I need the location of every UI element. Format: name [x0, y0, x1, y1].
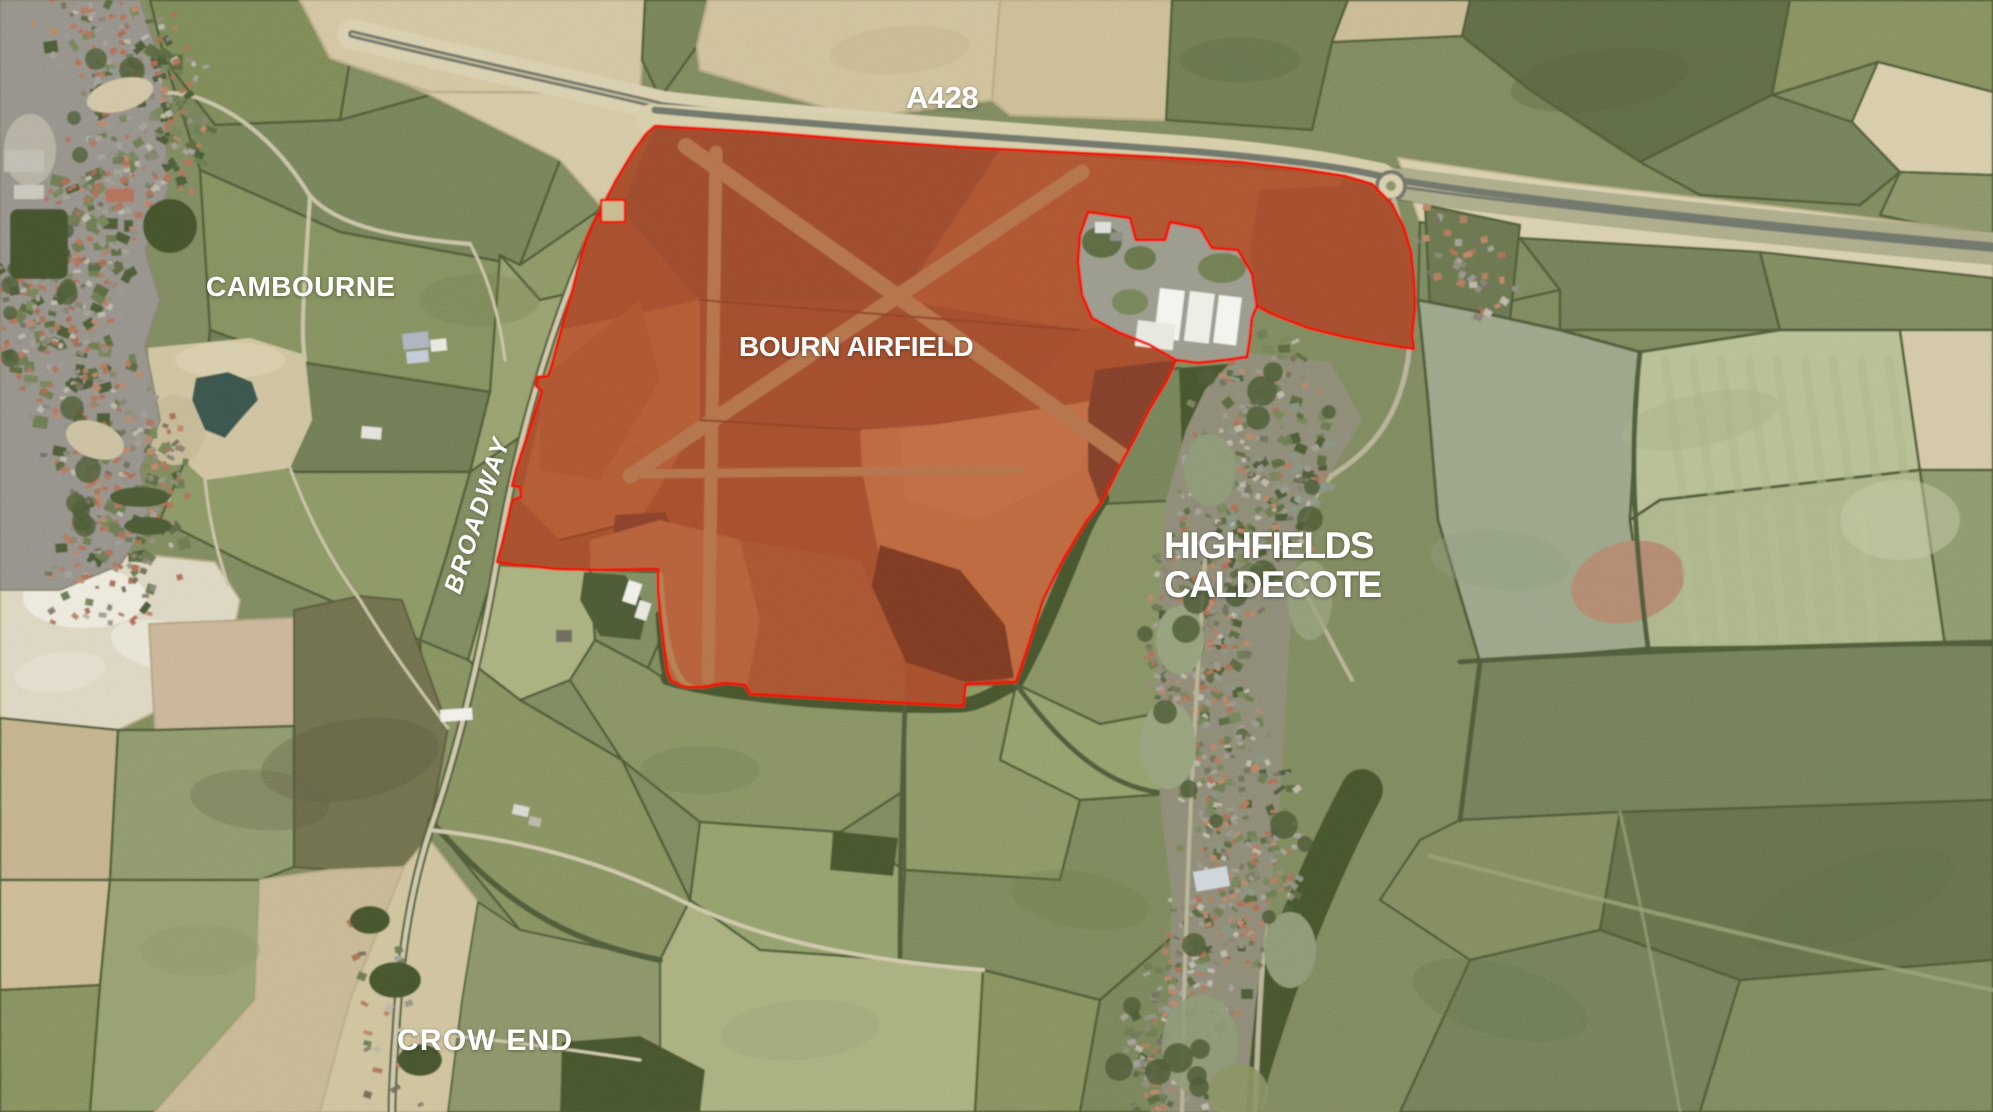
- svg-text:CALDECOTE: CALDECOTE: [1164, 564, 1382, 605]
- svg-text:HIGHFIELDS: HIGHFIELDS: [1164, 525, 1374, 566]
- svg-text:CAMBOURNE: CAMBOURNE: [206, 271, 396, 302]
- svg-text:CROW END: CROW END: [397, 1024, 573, 1057]
- svg-text:A428: A428: [906, 80, 978, 115]
- svg-text:BOURN AIRFIELD: BOURN AIRFIELD: [739, 331, 973, 362]
